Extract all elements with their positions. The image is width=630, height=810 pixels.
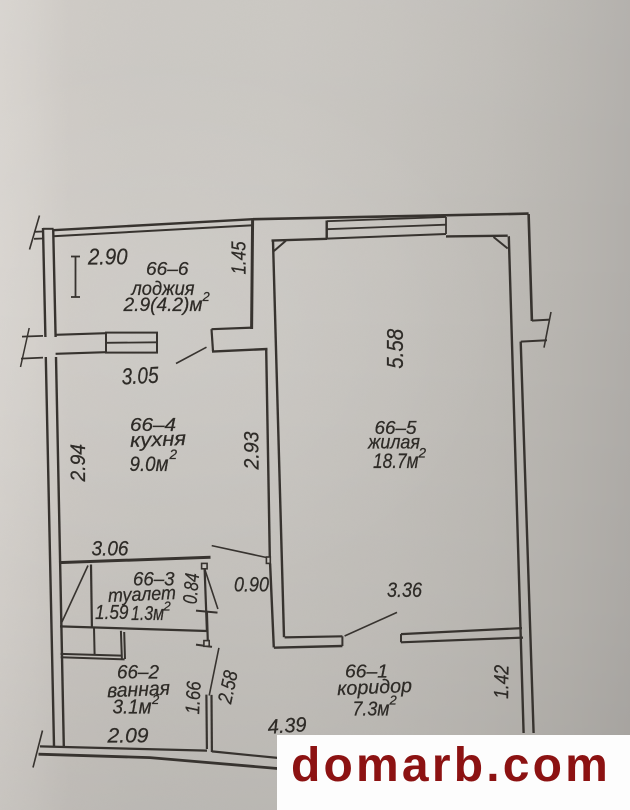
svg-text:0.84: 0.84 <box>180 572 205 605</box>
svg-text:2.90: 2.90 <box>87 244 128 270</box>
svg-text:2: 2 <box>389 693 398 708</box>
svg-text:2: 2 <box>151 692 160 707</box>
svg-text:5.58: 5.58 <box>382 329 408 369</box>
svg-text:2.94: 2.94 <box>66 444 90 482</box>
svg-text:2.93: 2.93 <box>240 431 264 470</box>
svg-text:2: 2 <box>202 289 211 304</box>
svg-text:1.3м: 1.3м <box>131 602 164 625</box>
svg-text:3.1м: 3.1м <box>113 697 152 719</box>
svg-text:2: 2 <box>163 599 172 614</box>
svg-text:7.3м: 7.3м <box>353 698 390 721</box>
svg-text:18.7м: 18.7м <box>373 450 419 473</box>
svg-text:2.9(4.2)м: 2.9(4.2)м <box>122 295 202 316</box>
svg-text:2: 2 <box>418 446 427 461</box>
svg-text:0.90: 0.90 <box>234 573 269 597</box>
svg-text:2.09: 2.09 <box>107 724 149 748</box>
svg-text:2.58: 2.58 <box>214 669 243 707</box>
svg-text:1.45: 1.45 <box>229 241 251 275</box>
svg-text:1.42: 1.42 <box>490 664 514 699</box>
svg-text:2: 2 <box>169 447 178 462</box>
svg-text:кухня: кухня <box>130 428 187 452</box>
svg-text:66–6: 66–6 <box>146 258 189 279</box>
svg-text:3.36: 3.36 <box>387 579 422 602</box>
svg-text:9.0м: 9.0м <box>130 452 169 476</box>
svg-text:коридор: коридор <box>337 675 413 700</box>
svg-text:1.66: 1.66 <box>182 680 206 715</box>
svg-text:1.59: 1.59 <box>95 601 129 624</box>
svg-text:3.05: 3.05 <box>121 362 159 390</box>
svg-text:3.06: 3.06 <box>92 537 129 561</box>
